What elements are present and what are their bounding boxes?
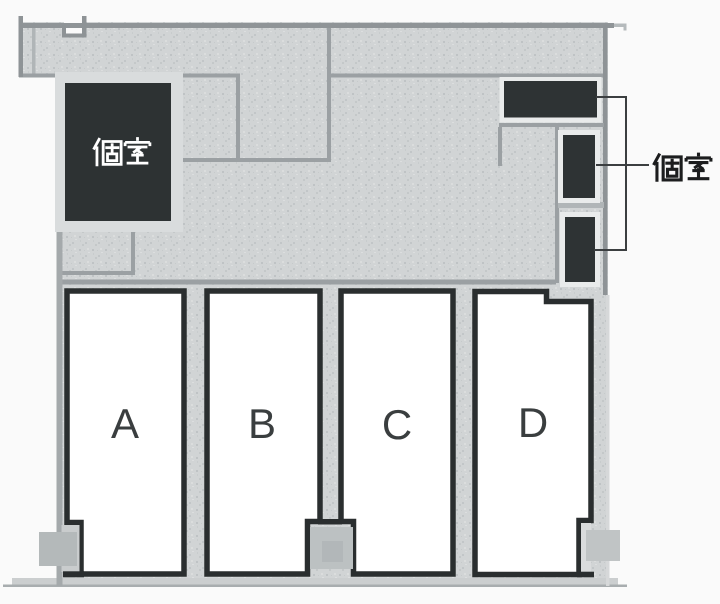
- svg-text:A: A: [111, 400, 139, 447]
- svg-text:D: D: [518, 399, 548, 446]
- svg-text:B: B: [248, 400, 276, 447]
- svg-text:C: C: [382, 401, 412, 448]
